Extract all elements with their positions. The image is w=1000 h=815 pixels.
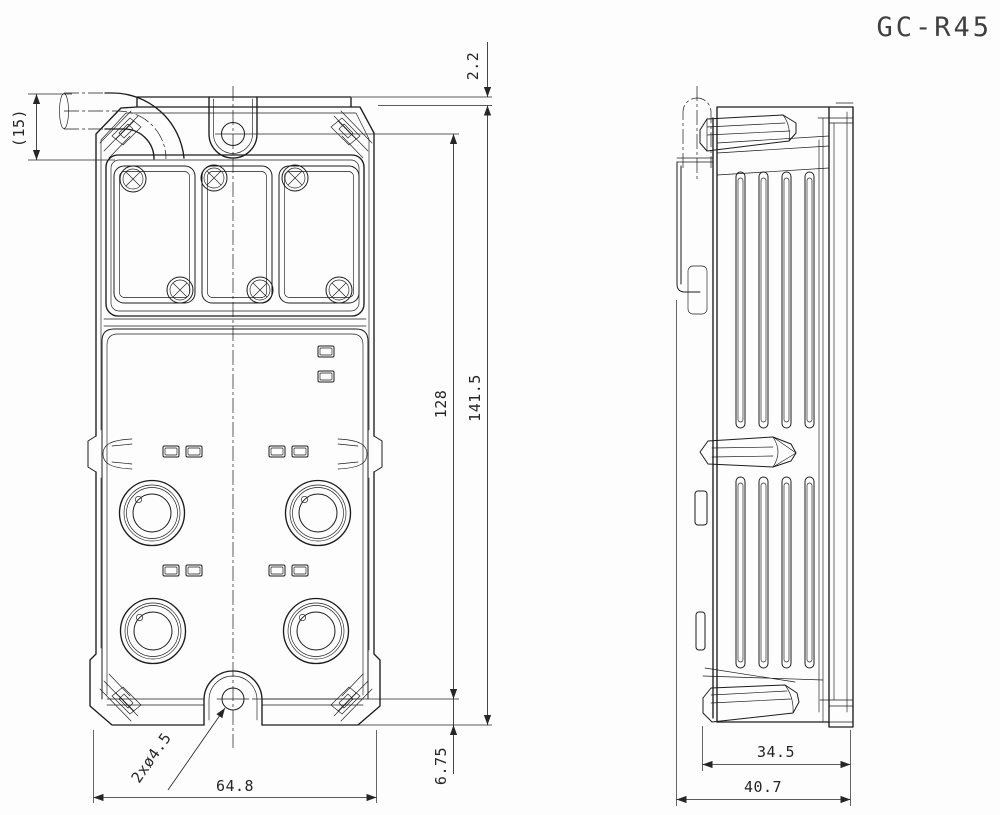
side-latch	[695, 491, 707, 525]
lower-panel	[102, 329, 368, 699]
indicator-window	[318, 371, 334, 382]
round-connector	[121, 599, 186, 664]
dimension-ear-offset: 2.2	[464, 42, 488, 97]
engineering-drawing: (15) 2.2 141.5 128 6.75 64.8	[0, 0, 1000, 815]
cable-bracket	[677, 158, 713, 314]
clip-recess-left	[88, 436, 132, 472]
dimension-overall-height: 141.5	[466, 106, 488, 726]
body-divider	[104, 319, 366, 326]
dimension-overall-depth: 40.7	[677, 778, 851, 800]
dimension-mounting-hole-note: 2xø4.5	[128, 708, 225, 790]
dimension-cable-clearance: (15)	[10, 94, 37, 160]
terminal-block	[106, 155, 364, 316]
dimension-body-depth: 34.5	[703, 743, 851, 765]
indicator-window	[163, 565, 179, 576]
screw-icon	[120, 166, 146, 192]
dimensions: (15) 2.2 141.5 128 6.75 64.8	[10, 42, 851, 806]
dim-label-hole-to-base: 6.75	[432, 747, 450, 785]
rib-slots-upper	[736, 172, 814, 428]
side-clip-bar	[700, 437, 796, 467]
clip-recess-right	[338, 436, 382, 472]
screw-icon	[247, 277, 273, 303]
side-top-tab	[700, 115, 796, 151]
gusset-bottom-left	[100, 674, 141, 721]
indicator-window	[292, 446, 308, 457]
gusset-bottom-right	[331, 674, 372, 721]
side-latch	[696, 612, 705, 650]
indicator-window	[186, 565, 202, 576]
dim-label-cable-clearance: (15)	[10, 109, 28, 147]
dim-label-mounting-hole-note: 2xø4.5	[128, 729, 176, 786]
dim-label-hole-pitch: 128	[432, 390, 450, 419]
indicator-window	[269, 565, 285, 576]
dim-label-body-depth: 34.5	[757, 743, 795, 761]
screw-icon	[326, 277, 352, 303]
screw-icon	[167, 277, 193, 303]
indicator-window	[186, 446, 202, 457]
indicator-window	[318, 346, 334, 357]
screw-icon	[282, 165, 308, 191]
round-connector	[284, 599, 349, 664]
rear-flange	[795, 103, 853, 727]
round-connector	[286, 481, 351, 546]
front-view	[60, 86, 383, 748]
screw-icon	[201, 165, 227, 191]
rib-slots-lower	[736, 477, 814, 668]
dim-label-ear-offset: 2.2	[464, 52, 482, 81]
indicator-window	[292, 565, 308, 576]
dimension-hole-to-base: 6.75	[432, 699, 454, 785]
indicator-window	[163, 446, 179, 457]
dim-label-overall-depth: 40.7	[744, 778, 782, 796]
front-outline	[90, 97, 380, 725]
dim-label-overall-height: 141.5	[466, 374, 484, 422]
side-view	[677, 86, 853, 727]
round-connector	[120, 481, 185, 546]
dimension-hole-pitch: 128	[432, 134, 454, 699]
indicator-window	[269, 446, 285, 457]
drawing-title: GC-R45	[876, 12, 992, 43]
dim-label-overall-width: 64.8	[216, 777, 254, 795]
